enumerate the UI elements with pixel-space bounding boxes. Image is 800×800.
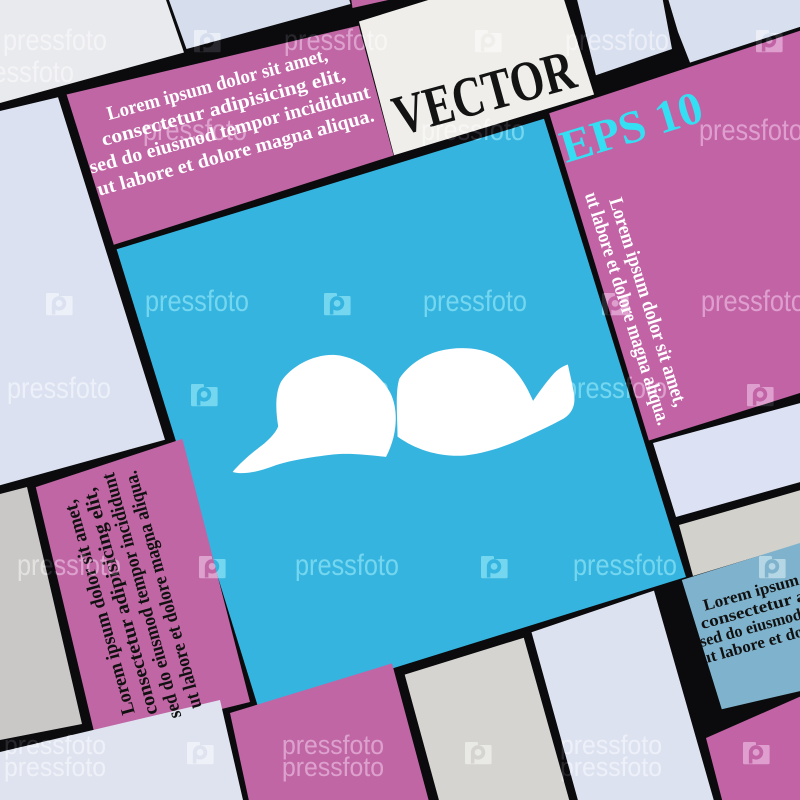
- svg-text:pressfoto: pressfoto: [284, 24, 388, 57]
- svg-text:pressfoto: pressfoto: [282, 752, 384, 782]
- svg-text:pressfoto: pressfoto: [285, 372, 389, 405]
- svg-text:pressfoto: pressfoto: [563, 372, 667, 405]
- svg-text:pressfoto: pressfoto: [3, 24, 107, 57]
- svg-text:pressfoto: pressfoto: [0, 56, 74, 89]
- svg-text:pressfoto: pressfoto: [7, 372, 111, 405]
- svg-text:pressfoto: pressfoto: [421, 114, 525, 147]
- svg-text:pressfoto: pressfoto: [573, 549, 677, 582]
- svg-text:pressfoto: pressfoto: [560, 752, 662, 782]
- svg-text:pressfoto: pressfoto: [145, 285, 249, 318]
- svg-text:pressfoto: pressfoto: [699, 114, 800, 147]
- svg-text:pressfoto: pressfoto: [4, 752, 106, 782]
- svg-text:pressfoto: pressfoto: [17, 549, 121, 582]
- svg-text:pressfoto: pressfoto: [143, 114, 247, 147]
- svg-text:pressfoto: pressfoto: [295, 549, 399, 582]
- svg-text:pressfoto: pressfoto: [701, 285, 800, 318]
- svg-text:pressfoto: pressfoto: [423, 285, 527, 318]
- svg-text:pressfoto: pressfoto: [565, 24, 669, 57]
